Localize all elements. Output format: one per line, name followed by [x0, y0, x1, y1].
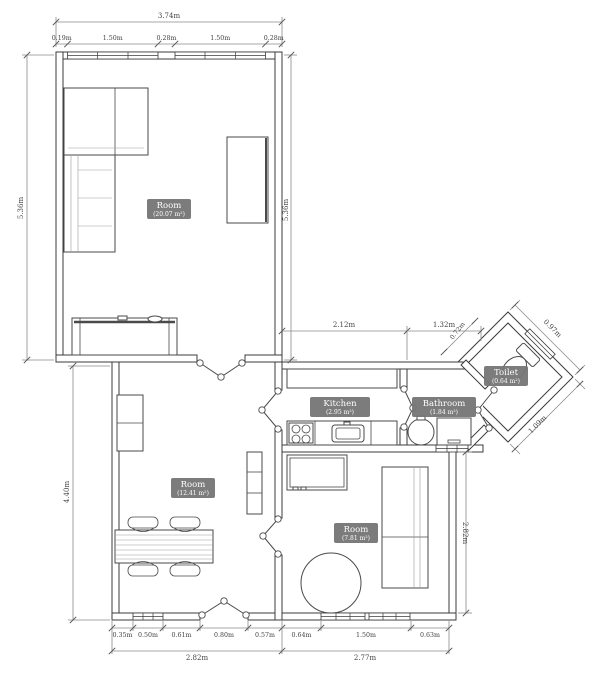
washing-machine [437, 418, 471, 445]
kitchen-sink [332, 422, 364, 442]
bathroom-window [436, 445, 468, 452]
floor-plan: 3.74m 0.19m 1.50m 0.28m 1.50m 0.28m 5.36… [0, 0, 600, 678]
top-room-desk [227, 137, 268, 223]
svg-text:1.50m: 1.50m [356, 632, 376, 639]
dim-bottom-left-total: 2.82m [109, 648, 285, 662]
lower-left-window [133, 613, 163, 620]
bed [382, 467, 428, 588]
bookshelf [247, 452, 262, 514]
svg-text:4.40m: 4.40m [63, 481, 71, 504]
piano [72, 316, 177, 355]
top-window-1 [68, 52, 159, 59]
room-label-top: Room (20.07 m²) [147, 199, 191, 219]
svg-text:5.36m: 5.36m [17, 197, 25, 220]
dim-right-lower: 2.82m [458, 449, 472, 616]
svg-text:0.28m: 0.28m [157, 35, 177, 42]
door-kitchen-entry [259, 388, 281, 432]
middle-wall-b [275, 430, 282, 518]
dim-bottom-right-segments: 0.64m 1.50m 0.63m [282, 621, 452, 654]
lower-right-window-2 [369, 613, 410, 620]
kitchen-bathroom-top-wall [282, 362, 468, 369]
svg-text:Bathroom: Bathroom [423, 399, 466, 409]
svg-text:(20.07 m²): (20.07 m²) [153, 211, 185, 218]
stove [289, 423, 313, 443]
svg-text:2.82m: 2.82m [186, 654, 209, 662]
kitchen-upper-counter [287, 369, 397, 388]
svg-text:2.82m: 2.82m [461, 522, 469, 545]
dim-left-upper: 5.36m [17, 52, 54, 363]
svg-text:Room: Room [344, 525, 369, 535]
svg-text:Room: Room [157, 201, 182, 211]
wardrobe [117, 395, 143, 451]
svg-text:Room: Room [181, 480, 206, 490]
svg-text:0.80m: 0.80m [214, 632, 234, 639]
svg-text:2.77m: 2.77m [354, 654, 377, 662]
floor-plan-page: 3.74m 0.19m 1.50m 0.28m 1.50m 0.28m 5.36… [0, 0, 600, 678]
chair-1 [128, 517, 158, 532]
svg-text:Toilet: Toilet [494, 368, 519, 378]
top-room-bottom-wall-right [245, 355, 282, 362]
svg-text:1.50m: 1.50m [103, 35, 123, 42]
svg-text:0.97m: 0.97m [542, 318, 564, 340]
room-label-kitchen: Kitchen (2.95 m²) [310, 397, 370, 417]
dim-mid-left: 2.12m [279, 321, 410, 360]
dim-bottom-left-segments: 0.35m 0.50m 0.61m 0.80m 0.57m [109, 621, 285, 654]
room-label-toilet: Toilet (0.64 m²) [484, 366, 528, 386]
svg-text:0.35m: 0.35m [113, 632, 133, 639]
svg-text:5.36m: 5.36m [282, 199, 290, 222]
dim-top-segments: 0.19m 1.50m 0.28m 1.50m 0.28m [52, 35, 285, 47]
sofa [64, 88, 148, 252]
chair-4 [170, 562, 200, 577]
svg-text:(2.95 m²): (2.95 m²) [326, 409, 354, 416]
dim-right-upper: 5.36m [282, 52, 297, 363]
svg-text:(1.84 m²): (1.84 m²) [430, 409, 458, 416]
svg-text:2.12m: 2.12m [333, 321, 356, 329]
svg-text:0.28m: 0.28m [264, 35, 284, 42]
svg-text:1.32m: 1.32m [433, 321, 456, 329]
chair-2 [170, 517, 200, 532]
svg-text:3.74m: 3.74m [158, 12, 181, 20]
round-rug [301, 553, 361, 613]
svg-text:0.61m: 0.61m [172, 632, 192, 639]
middle-wall-c [275, 555, 282, 620]
svg-text:0.57m: 0.57m [255, 632, 275, 639]
svg-text:(12.41 m²): (12.41 m²) [177, 490, 209, 497]
middle-wall-a [275, 362, 282, 390]
kitchen-bathroom-divider-a [400, 369, 407, 388]
room-label-bathroom: Bathroom (1.84 m²) [412, 397, 476, 417]
svg-text:(7.81 m²): (7.81 m²) [342, 535, 370, 542]
door-top-room [197, 360, 245, 380]
dim-left-lower: 4.40m [63, 363, 110, 623]
lower-right-room-right-wall [449, 445, 456, 620]
top-room-left-wall [56, 52, 63, 362]
room-label-lower-right: Room (7.81 m²) [334, 523, 378, 543]
svg-text:0.19m: 0.19m [52, 35, 72, 42]
lower-right-window-1 [321, 613, 365, 620]
dining-table [115, 530, 213, 563]
top-window-2 [175, 52, 266, 59]
room-label-lower-left: Room (12.41 m²) [171, 478, 215, 498]
door-lower-left-bottom [199, 598, 249, 618]
dresser [287, 455, 347, 490]
top-room-bottom-wall-left [56, 355, 197, 362]
svg-text:(0.64 m²): (0.64 m²) [492, 378, 520, 385]
svg-text:1.50m: 1.50m [210, 35, 230, 42]
dim-bottom-right-total: 2.77m [282, 648, 452, 662]
door-lower-rooms [260, 516, 281, 557]
svg-text:0.64m: 0.64m [292, 632, 312, 639]
top-room-right-wall [275, 52, 282, 362]
svg-text:0.63m: 0.63m [420, 632, 440, 639]
chair-3 [128, 562, 158, 577]
svg-text:0.50m: 0.50m [138, 632, 158, 639]
svg-text:Kitchen: Kitchen [323, 399, 357, 409]
